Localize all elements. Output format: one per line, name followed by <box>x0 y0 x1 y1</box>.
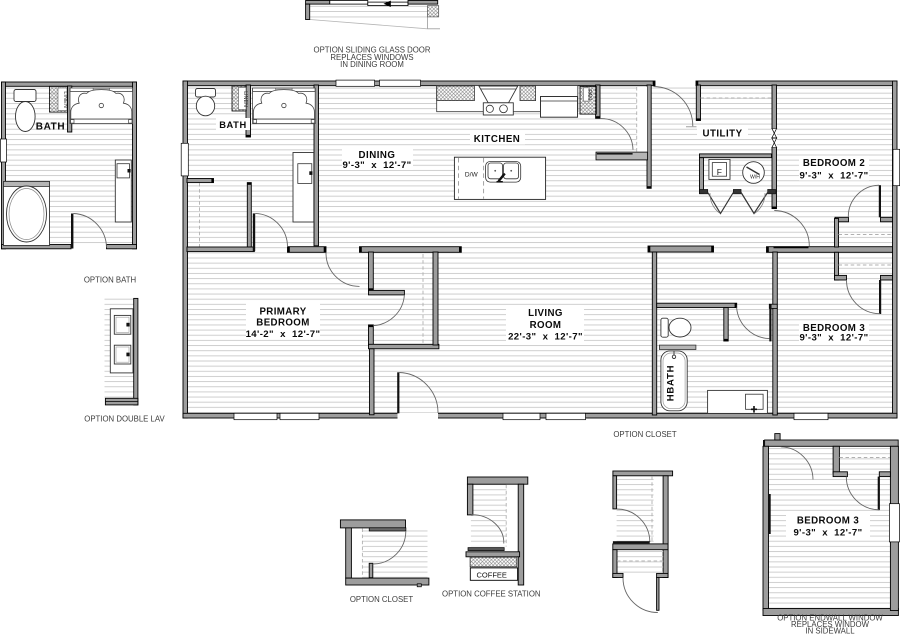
svg-text:OPTION CLOSET: OPTION CLOSET <box>613 430 676 439</box>
svg-text:HBATH: HBATH <box>666 365 677 402</box>
svg-text:PAN: PAN <box>586 89 592 100</box>
svg-text:LIVING: LIVING <box>528 308 563 319</box>
svg-text:UTILITY: UTILITY <box>702 129 742 140</box>
svg-text:OPTION CLOSET: OPTION CLOSET <box>350 595 413 604</box>
svg-text:D/W: D/W <box>465 171 479 178</box>
svg-text:22'-3" x 12'-7": 22'-3" x 12'-7" <box>508 332 583 343</box>
svg-text:9'-3" x 12'-7": 9'-3" x 12'-7" <box>799 333 868 344</box>
svg-text:OPTION DOUBLE LAV: OPTION DOUBLE LAV <box>84 415 165 424</box>
svg-text:IN DINING ROOM: IN DINING ROOM <box>340 60 404 69</box>
svg-text:W/H: W/H <box>750 175 760 181</box>
svg-text:ROOM: ROOM <box>530 320 562 331</box>
svg-text:BEDROOM 3: BEDROOM 3 <box>797 516 859 527</box>
svg-text:PRIMARY: PRIMARY <box>259 307 306 318</box>
svg-text:BEDROOM 2: BEDROOM 2 <box>803 158 865 169</box>
svg-text:9'-3" x 12'-7": 9'-3" x 12'-7" <box>793 527 862 538</box>
svg-text:IN SIDEWALL: IN SIDEWALL <box>805 627 855 634</box>
svg-text:F: F <box>717 167 722 177</box>
svg-text:BATH: BATH <box>219 120 247 130</box>
svg-text:9'-3" x 12'-7": 9'-3" x 12'-7" <box>799 171 868 182</box>
svg-text:LINEN: LINEN <box>242 91 248 107</box>
svg-text:14'-2" x 12'-7": 14'-2" x 12'-7" <box>246 329 321 340</box>
svg-text:OPTION BATH: OPTION BATH <box>84 276 136 285</box>
svg-text:COFFEE: COFFEE <box>476 570 506 579</box>
svg-text:BEDROOM: BEDROOM <box>256 318 309 329</box>
svg-text:OPTION COFFEE STATION: OPTION COFFEE STATION <box>442 589 540 598</box>
svg-text:BATH: BATH <box>36 122 65 133</box>
svg-text:KITCHEN: KITCHEN <box>474 134 521 145</box>
svg-text:9'-3" x 12'-7": 9'-3" x 12'-7" <box>342 160 411 171</box>
